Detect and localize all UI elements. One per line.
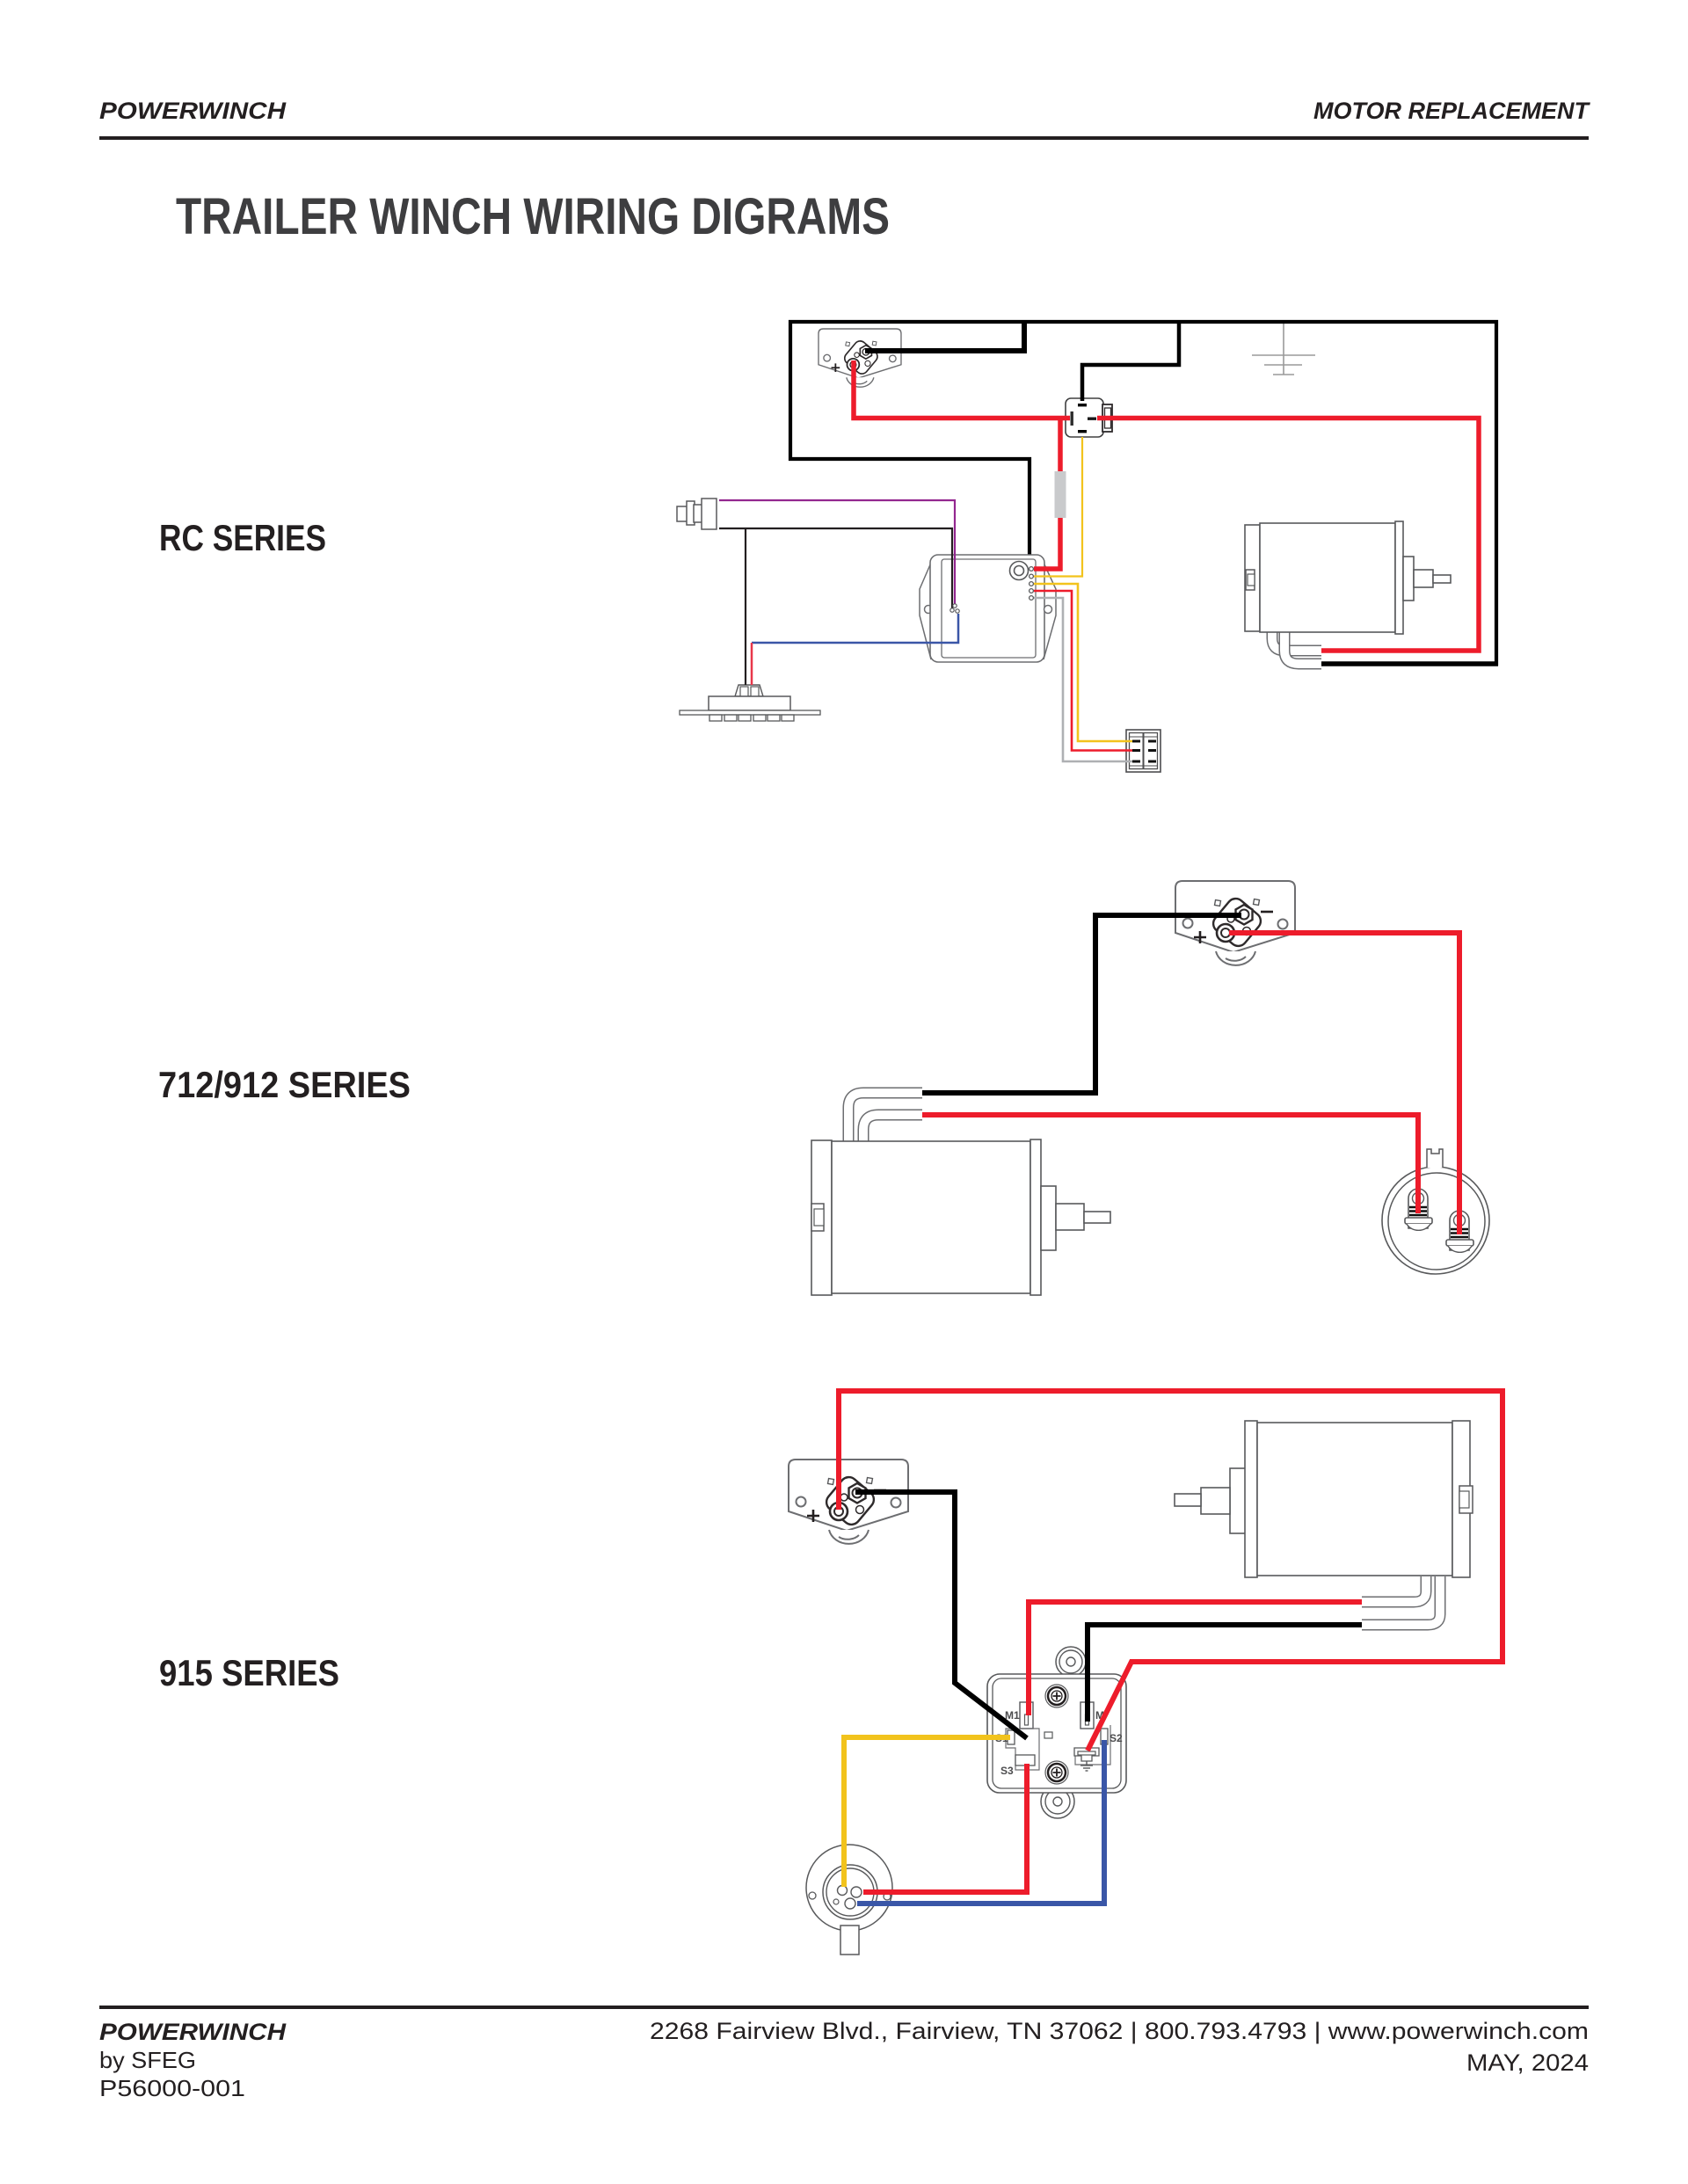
svg-text:RC SERIES: RC SERIES <box>159 517 326 558</box>
svg-text:by SFEG: by SFEG <box>99 2047 196 2073</box>
svg-text:MAY, 2024: MAY, 2024 <box>1466 2049 1589 2076</box>
svg-text:915 SERIES: 915 SERIES <box>159 1652 339 1693</box>
svg-text:TRAILER WINCH WIRING DIGRAMS: TRAILER WINCH WIRING DIGRAMS <box>176 188 890 245</box>
svg-text:M1: M1 <box>1005 1709 1020 1722</box>
svg-text:712/912 SERIES: 712/912 SERIES <box>158 1064 411 1105</box>
svg-text:P56000-001: P56000-001 <box>99 2075 245 2101</box>
svg-text:S3: S3 <box>1000 1765 1014 1777</box>
svg-text:MOTOR REPLACEMENT: MOTOR REPLACEMENT <box>1313 98 1591 124</box>
svg-text:POWERWINCH: POWERWINCH <box>99 98 287 124</box>
svg-text:S2: S2 <box>1110 1732 1123 1744</box>
svg-text:POWERWINCH: POWERWINCH <box>99 2019 287 2045</box>
svg-text:2268 Fairview Blvd., Fairview,: 2268 Fairview Blvd., Fairview, TN 37062 … <box>650 2018 1589 2044</box>
